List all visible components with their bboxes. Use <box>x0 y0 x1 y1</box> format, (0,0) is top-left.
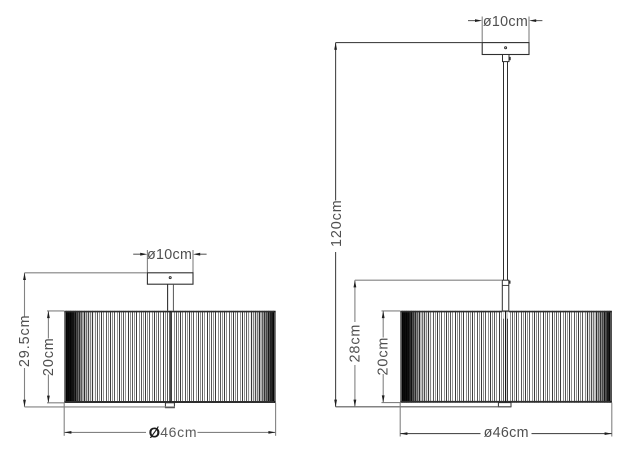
svg-text:Ø: Ø <box>149 425 160 441</box>
svg-text:ø10cm: ø10cm <box>147 247 192 263</box>
svg-text:ø46cm: ø46cm <box>484 425 529 441</box>
svg-text:120cm: 120cm <box>329 199 345 247</box>
svg-text:46cm: 46cm <box>160 424 197 440</box>
svg-text:28cm: 28cm <box>347 324 363 363</box>
svg-text:20cm: 20cm <box>41 337 57 376</box>
svg-text:20cm: 20cm <box>375 337 391 376</box>
svg-text:29.5cm: 29.5cm <box>17 315 33 368</box>
svg-text:ø10cm: ø10cm <box>483 14 528 30</box>
